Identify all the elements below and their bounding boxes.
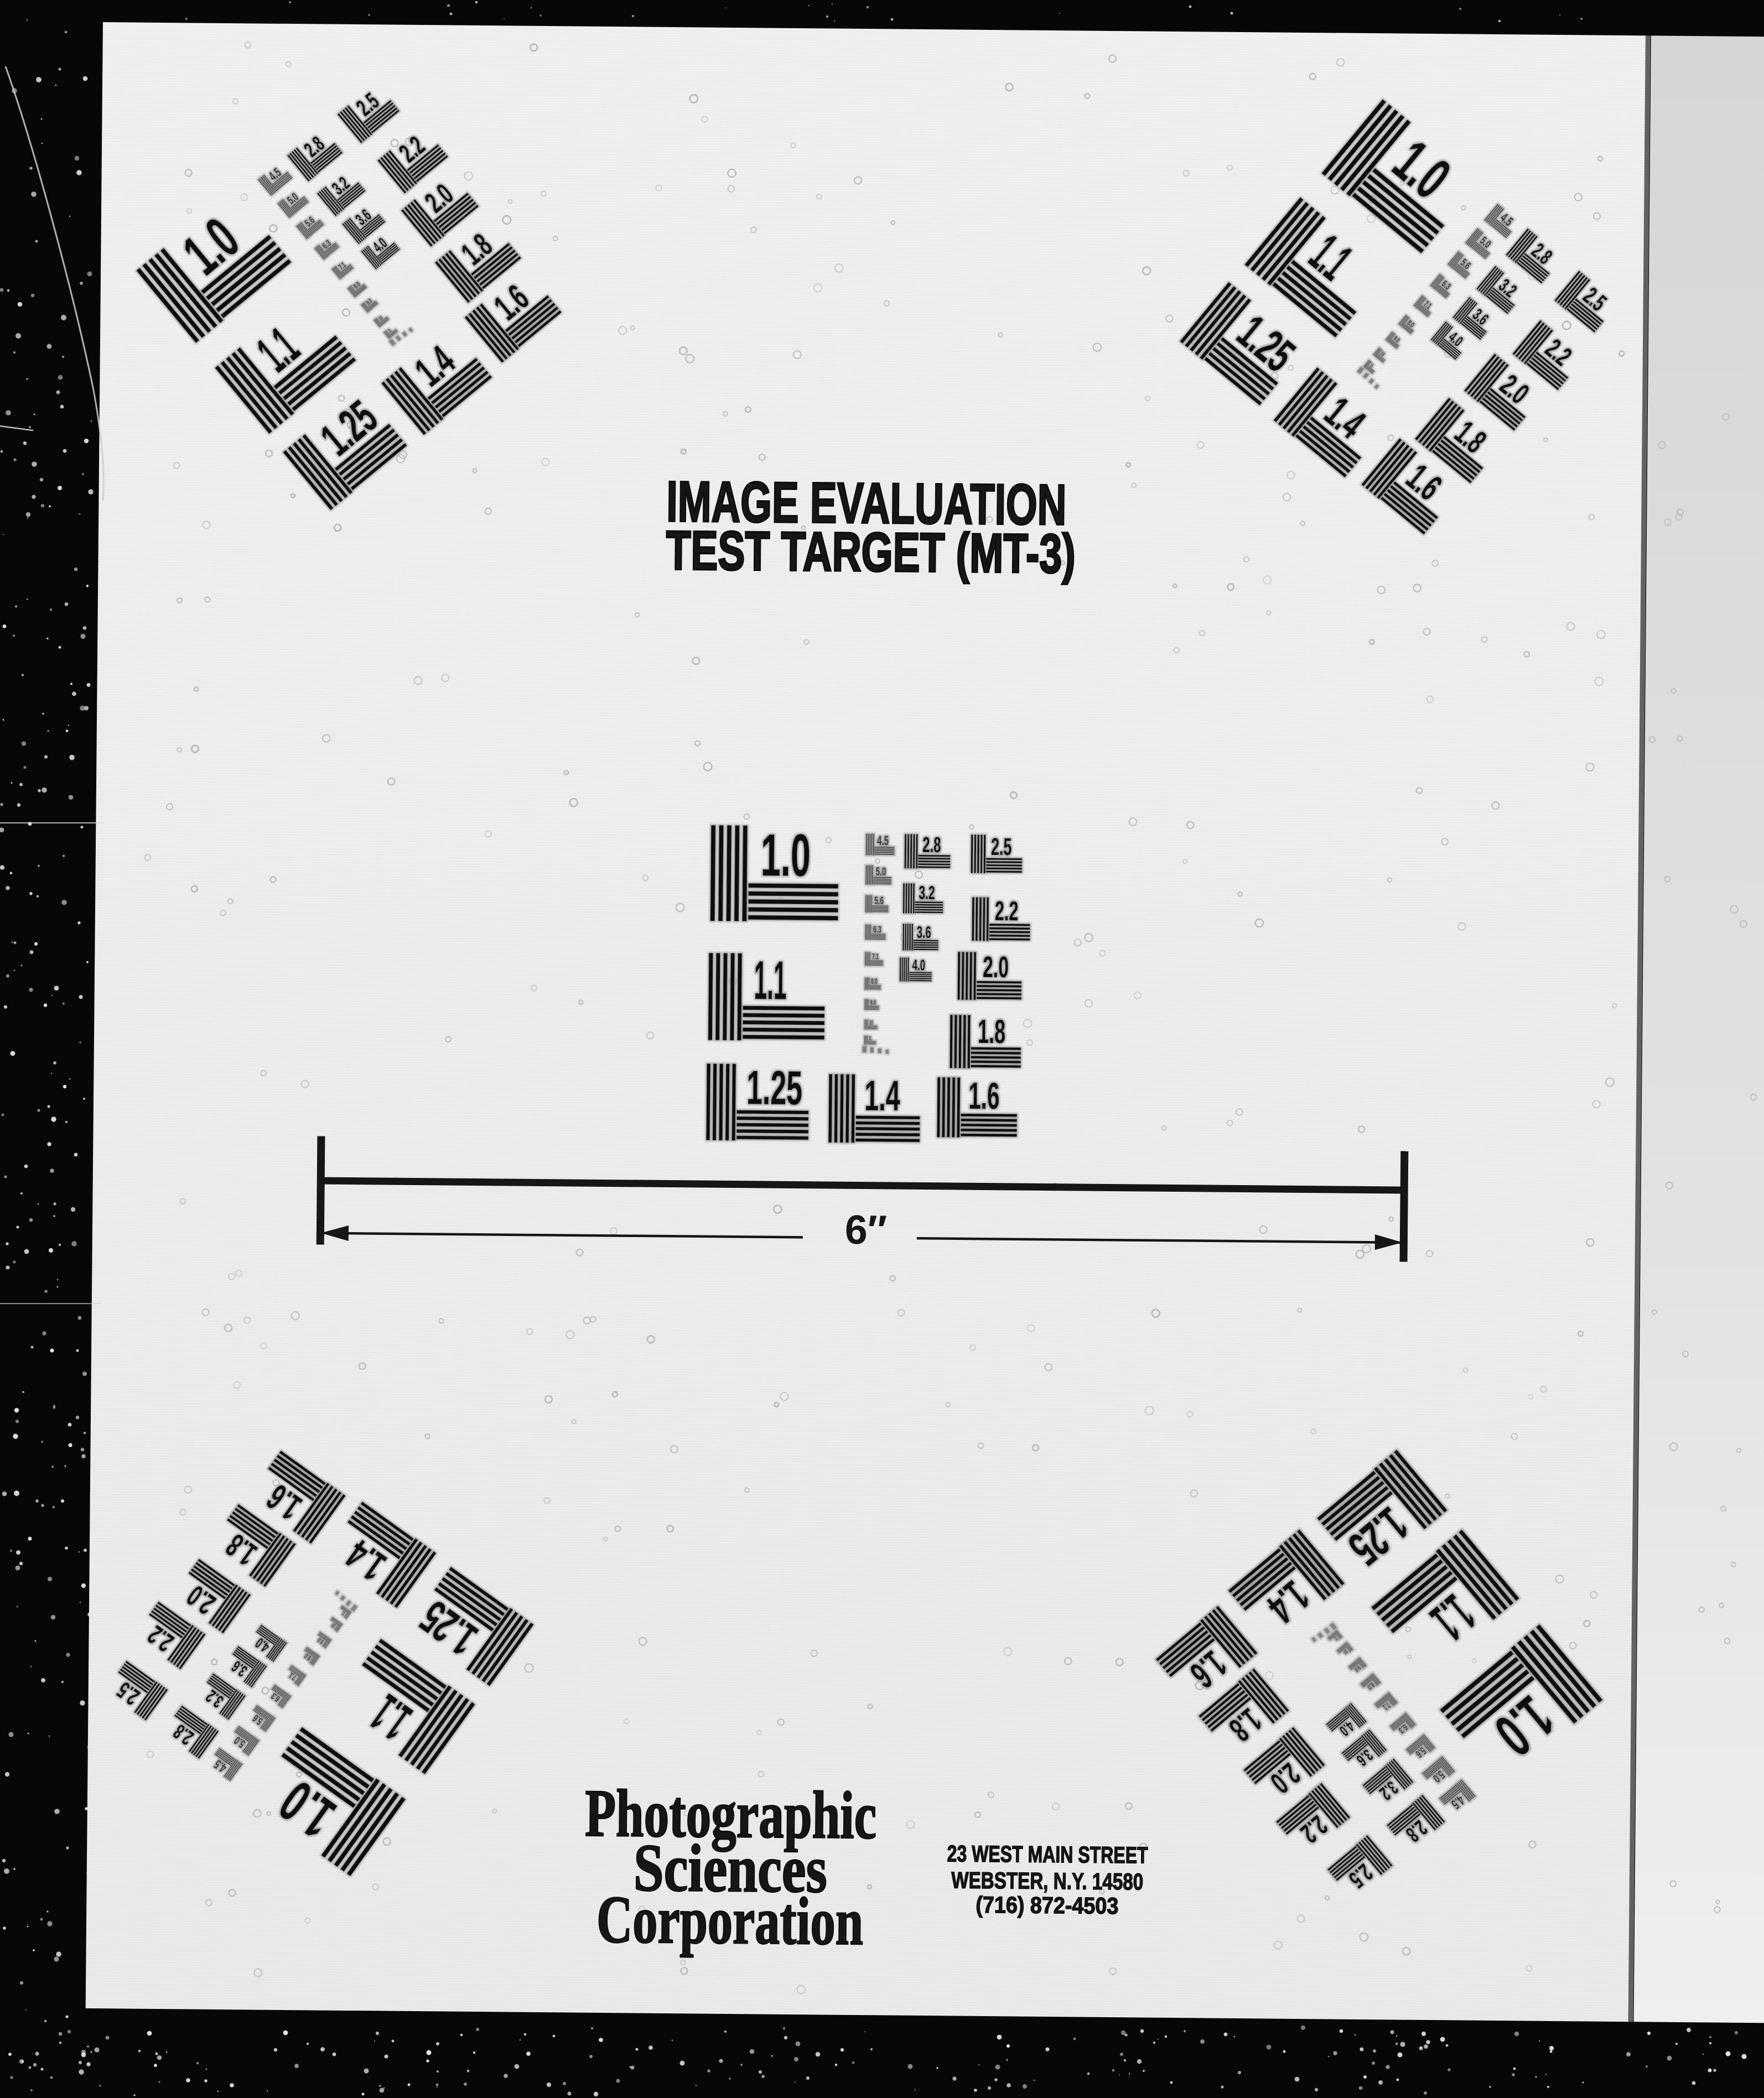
svg-text:WEBSTER, N.Y. 14580: WEBSTER, N.Y. 14580 <box>951 1867 1143 1895</box>
svg-text:(716) 872-4503: (716) 872-4503 <box>976 1892 1118 1919</box>
svg-text:6″: 6″ <box>845 1207 888 1253</box>
svg-text:TEST TARGET (MT-3): TEST TARGET (MT-3) <box>666 520 1076 585</box>
svg-text:Corporation: Corporation <box>596 1882 864 1959</box>
svg-text:23 WEST MAIN STREET: 23 WEST MAIN STREET <box>947 1840 1148 1868</box>
